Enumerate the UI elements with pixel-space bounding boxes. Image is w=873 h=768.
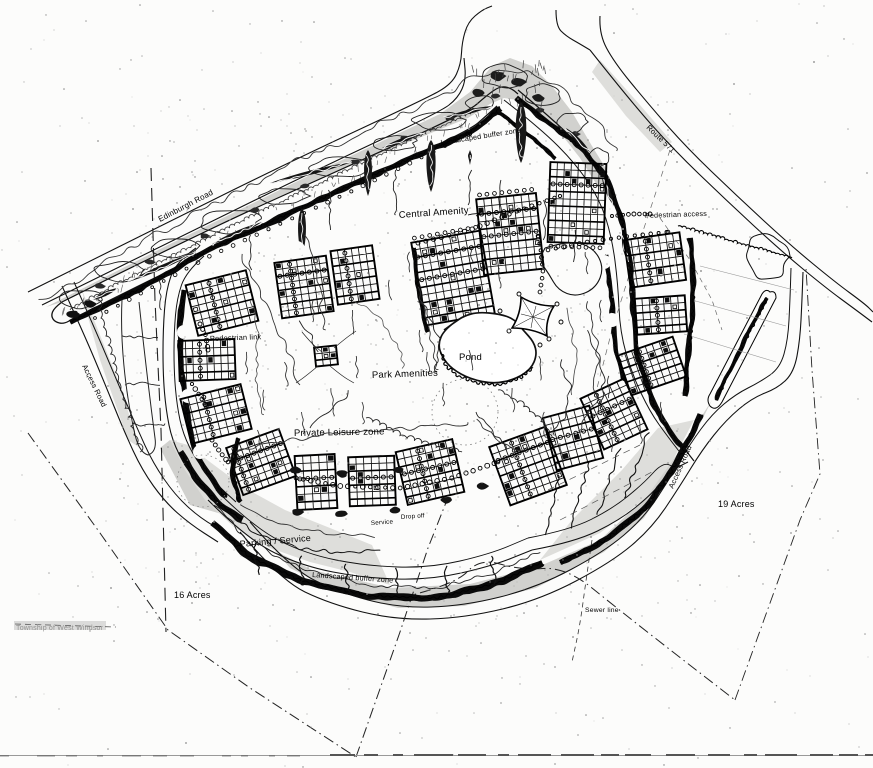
svg-text:Park Amenities: Park Amenities (372, 368, 439, 381)
svg-text:16 Acres: 16 Acres (174, 590, 211, 600)
svg-text:Sewer line: Sewer line (585, 607, 619, 614)
svg-text:Pond: Pond (459, 352, 482, 363)
svg-text:Pedestrian link: Pedestrian link (210, 332, 262, 343)
